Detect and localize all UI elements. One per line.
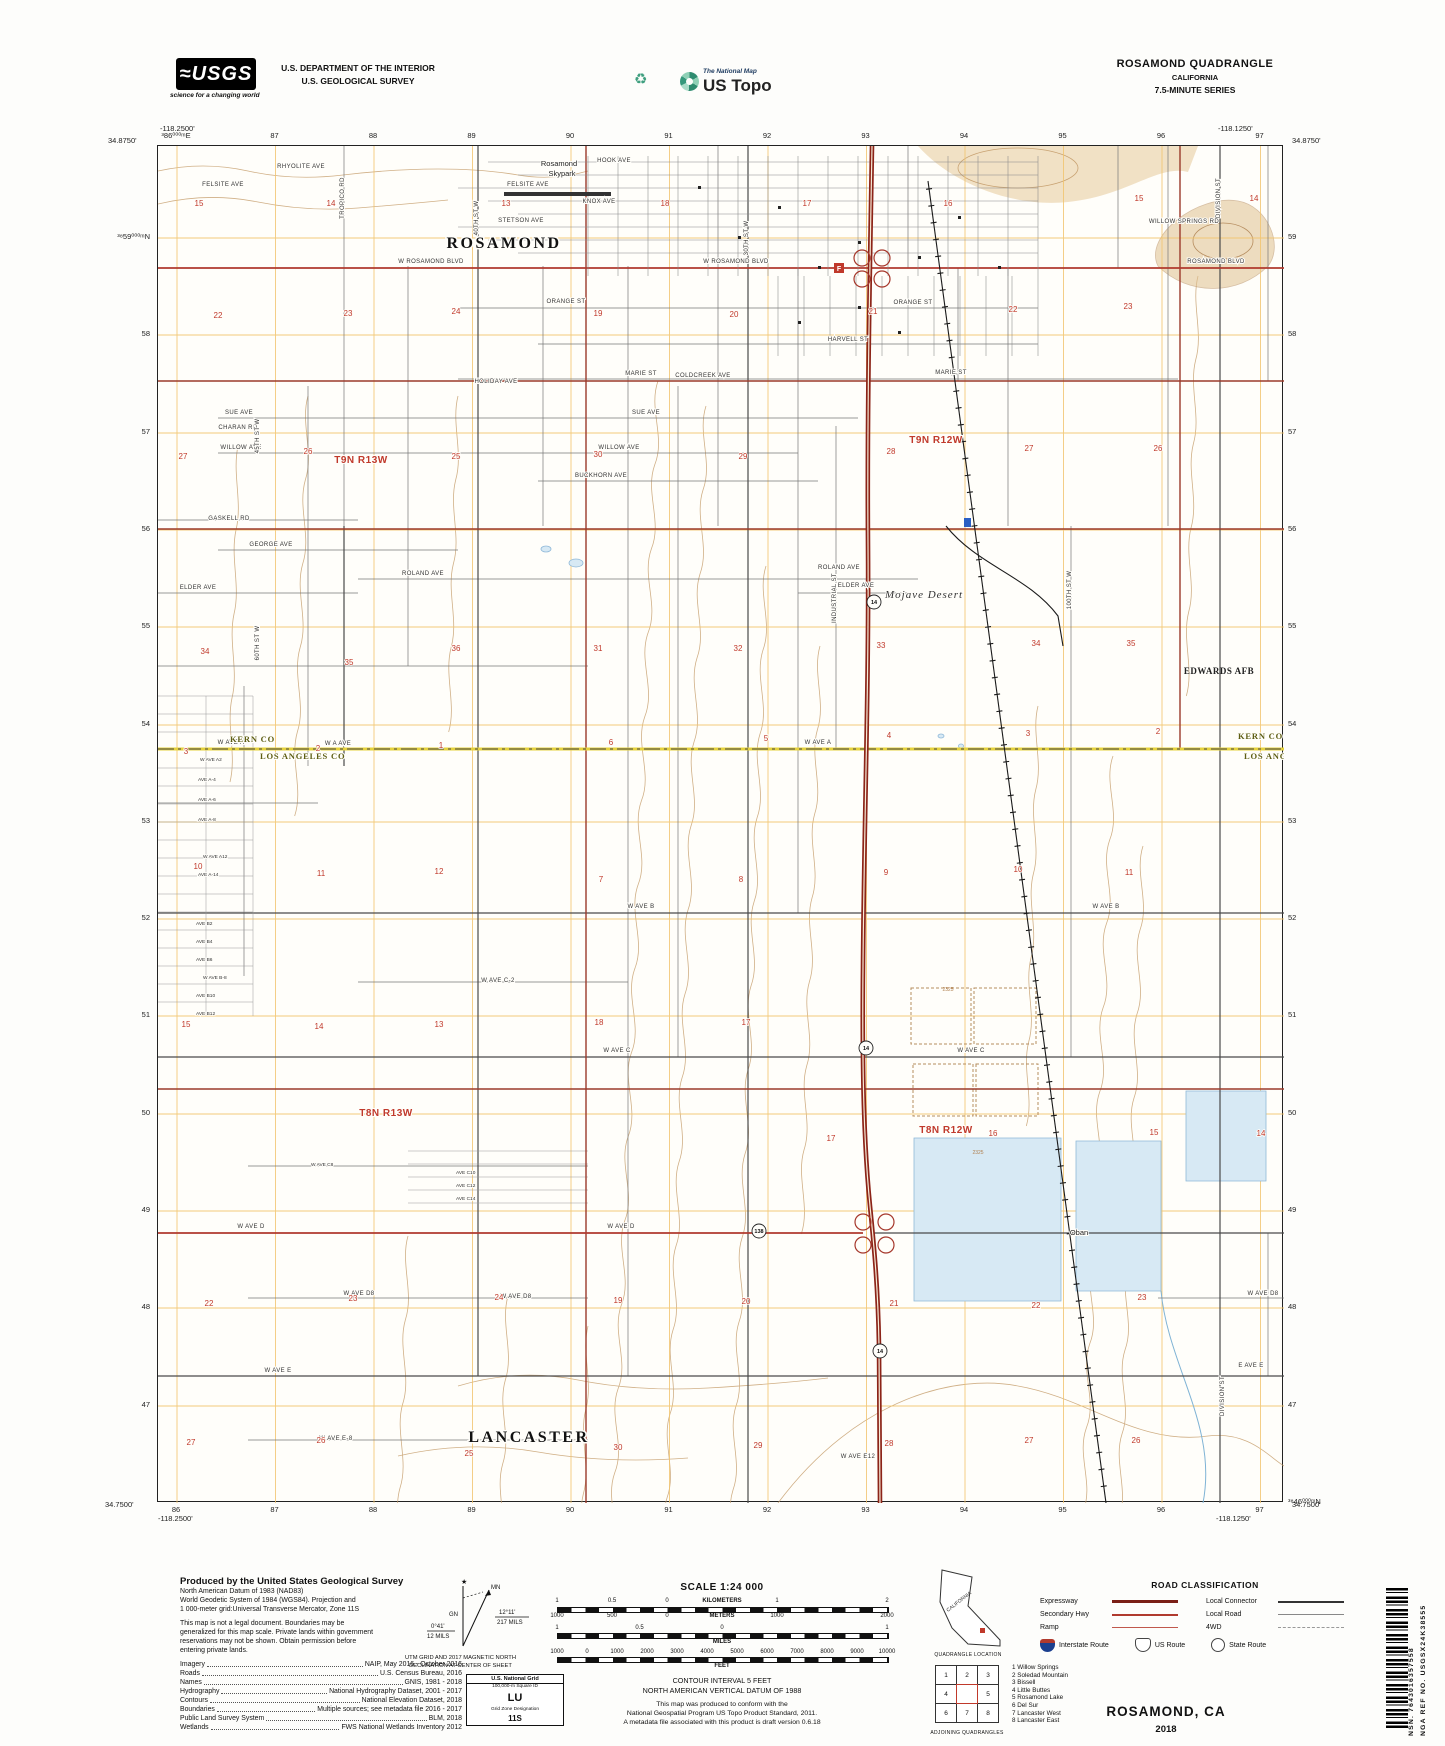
national-map-label: The National Map bbox=[703, 68, 757, 75]
railroad-tick bbox=[1085, 1368, 1091, 1369]
scale-tick-row: 10.501 bbox=[557, 1625, 887, 1633]
ramp-loop bbox=[854, 250, 870, 266]
section-number: 24 bbox=[452, 307, 461, 316]
section-number: 32 bbox=[734, 644, 743, 653]
grid-label: 88 bbox=[369, 131, 377, 140]
shield-number: 14 bbox=[871, 600, 878, 606]
railroad-tick bbox=[983, 610, 989, 611]
nsn-number: NSN. 7643016357558 bbox=[1408, 1560, 1415, 1736]
source-row: BoundariesMultiple sources; see metadata… bbox=[180, 1705, 462, 1714]
map-label-sub: AVE B6 bbox=[196, 957, 213, 963]
section-number: 11 bbox=[317, 869, 326, 878]
grid-label: ³86⁰⁰⁰ᵐE bbox=[161, 131, 190, 140]
section-number: 27 bbox=[179, 452, 188, 461]
map-label-street: GEORGE AVE bbox=[249, 542, 292, 548]
railroad-tick bbox=[931, 222, 937, 223]
california-outline: CALIFORNIA bbox=[928, 1566, 1008, 1650]
scale-tick-row: MILES bbox=[557, 1639, 887, 1647]
grid-label: 54 bbox=[142, 719, 150, 728]
adjoining-quad-name: 7 Lancaster West bbox=[1012, 1710, 1068, 1718]
section-number: 10 bbox=[194, 862, 203, 871]
map-label-sub: AVE A-4 bbox=[198, 777, 216, 783]
map-label-street: W A AVE bbox=[325, 741, 351, 747]
section-number: 33 bbox=[877, 641, 886, 650]
map-label-street: HARVELL ST bbox=[828, 337, 868, 343]
map-label-streetv: 30TH ST W bbox=[744, 221, 750, 256]
svg-text:★: ★ bbox=[461, 1578, 467, 1586]
railroad-tick bbox=[949, 357, 955, 358]
map-label-sub: AVE A-6 bbox=[198, 797, 216, 803]
grid-label: 50 bbox=[142, 1108, 150, 1117]
section-number: 28 bbox=[885, 1439, 894, 1448]
corner-coord-nw-lat: 34.8750' bbox=[108, 136, 137, 145]
map-label-sub: W AVE A2 bbox=[200, 757, 222, 763]
map-label-twnshp: T8N R12W bbox=[919, 1125, 973, 1136]
national-map-icon bbox=[680, 72, 699, 91]
section-number: 18 bbox=[661, 199, 670, 208]
utm-grid bbox=[158, 146, 1284, 1503]
adjoining-cell: 2 bbox=[956, 1665, 978, 1685]
railroad-tick bbox=[1017, 862, 1023, 863]
map-label-place: Skypark bbox=[548, 169, 575, 178]
shield-number: 14 bbox=[877, 1349, 884, 1355]
grid-label: 87 bbox=[270, 1505, 278, 1514]
map-label-street: ELDER AVE bbox=[838, 583, 875, 589]
conformance-note: This map was produced to conform with th… bbox=[527, 1700, 917, 1727]
grid-label: 97 bbox=[1255, 131, 1263, 140]
railroad-tick bbox=[1026, 930, 1032, 931]
contour-line bbox=[230, 446, 238, 782]
map-label-sub: AVE C12 bbox=[456, 1183, 476, 1189]
section-number: 24 bbox=[495, 1293, 504, 1302]
grid-label: 50 bbox=[1288, 1108, 1296, 1117]
map-label-streetv: 100TH ST W bbox=[1067, 571, 1073, 610]
dept-line2: U.S. GEOLOGICAL SURVEY bbox=[268, 75, 448, 88]
grid-label: 91 bbox=[664, 1505, 672, 1514]
railroad-tick bbox=[928, 205, 934, 206]
map-label-street: MARIE ST bbox=[625, 371, 657, 377]
grid-label: 58 bbox=[142, 329, 150, 338]
grid-label: 49 bbox=[142, 1205, 150, 1214]
adjoining-cell: 1 bbox=[935, 1665, 957, 1685]
section-number: 29 bbox=[739, 452, 748, 461]
map-label-street: FELSITE AVE bbox=[202, 182, 244, 188]
section-number: 8 bbox=[739, 875, 744, 884]
pond bbox=[541, 546, 551, 552]
section-number: 19 bbox=[614, 1296, 623, 1305]
contour-line bbox=[458, 1375, 828, 1389]
grid-label: 47 bbox=[142, 1400, 150, 1409]
section-number: 14 bbox=[327, 199, 336, 208]
adjoining-quad-name: 5 Rosamond Lake bbox=[1012, 1694, 1068, 1702]
map-label-county: KERN CO bbox=[1238, 731, 1283, 741]
grid-label: ³⁸46⁰⁰⁰ᵐN bbox=[1288, 1497, 1321, 1506]
railroad-tick bbox=[978, 576, 984, 577]
contour-line bbox=[801, 646, 820, 1234]
map-label-streetv: 45TH ST W bbox=[255, 419, 261, 454]
section-number: 15 bbox=[1135, 194, 1144, 203]
section-number: 15 bbox=[195, 199, 204, 208]
hill-shade bbox=[1155, 200, 1274, 288]
section-number: 26 bbox=[1154, 444, 1163, 453]
building bbox=[998, 266, 1001, 269]
railroad-tick bbox=[1008, 795, 1014, 796]
map-label-street: W AVE B bbox=[1092, 904, 1119, 910]
map-label-street: ORANGE ST bbox=[547, 299, 586, 305]
grid-label: 86 bbox=[172, 1505, 180, 1514]
map-label-street: RHYOLITE AVE bbox=[277, 164, 325, 170]
section-number: 23 bbox=[1138, 1293, 1147, 1302]
quad-location-caption: QUADRANGLE LOCATION bbox=[918, 1652, 1018, 1658]
railroad-tick bbox=[981, 593, 987, 594]
adjoining-cell: 6 bbox=[935, 1703, 957, 1723]
railroad-spur bbox=[946, 526, 1063, 646]
decl-left-mils: 12 MILS bbox=[427, 1634, 449, 1640]
map-label-street: HOOK AVE bbox=[597, 158, 631, 164]
sheet-year: 2018 bbox=[1066, 1724, 1266, 1735]
ramp-loop bbox=[878, 1214, 894, 1230]
lake bbox=[1186, 1091, 1266, 1181]
map-label-sub: AVE B10 bbox=[196, 993, 215, 999]
map-label-town: ROSAMOND bbox=[446, 235, 561, 252]
section-number: 13 bbox=[435, 1020, 444, 1029]
building bbox=[858, 306, 861, 309]
quad-location-dot bbox=[980, 1628, 985, 1633]
contour-line bbox=[500, 1296, 508, 1503]
section-number: 14 bbox=[315, 1022, 324, 1031]
scale-bars: 10.5012KILOMETERS1000500010002000METERS1… bbox=[557, 1598, 887, 1673]
mn-label: MN bbox=[491, 1585, 500, 1591]
map-label-street: W AVE D8 bbox=[500, 1294, 531, 1300]
section-number: 1 bbox=[439, 741, 444, 750]
railroad-tick bbox=[1069, 1250, 1075, 1251]
map-label-streetv: DIVISION ST bbox=[1220, 1376, 1226, 1416]
railroad-tick bbox=[937, 273, 943, 274]
section-number: 25 bbox=[465, 1449, 474, 1458]
section-number: 21 bbox=[869, 307, 878, 316]
decl-right-deg: 12°11' bbox=[499, 1610, 515, 1616]
corner-coord-sw-lat: 34.7500' bbox=[105, 1500, 134, 1509]
railroad-tick bbox=[944, 323, 950, 324]
railroad-tick bbox=[1012, 829, 1018, 830]
gn-label: GN bbox=[449, 1612, 458, 1618]
map-label-street: FELSITE AVE bbox=[507, 182, 549, 188]
grid-label: 52 bbox=[1288, 913, 1296, 922]
adjoining-cell: 7 bbox=[956, 1703, 978, 1723]
vertical-datum: NORTH AMERICAN VERTICAL DATUM OF 1988 bbox=[557, 1686, 887, 1695]
map-label-afb: EDWARDS AFB bbox=[1184, 666, 1254, 676]
building bbox=[798, 321, 801, 324]
section-number: 22 bbox=[214, 311, 223, 320]
grid-label: 91 bbox=[664, 131, 672, 140]
quadrangle-title-block: ROSAMOND QUADRANGLE CALIFORNIA 7.5-MINUT… bbox=[1035, 58, 1355, 95]
contour-line bbox=[449, 396, 459, 732]
grid-label: 90 bbox=[566, 131, 574, 140]
map-label-contour: 2325 bbox=[942, 987, 953, 993]
section-number: 14 bbox=[1257, 1129, 1266, 1138]
grid-label: 53 bbox=[1288, 816, 1296, 825]
railroad-tick bbox=[1003, 761, 1009, 762]
decl-right-mils: 217 MILS bbox=[497, 1620, 523, 1626]
map-label-desert: Mojave Desert bbox=[884, 589, 963, 601]
map-label-street: W AVE D8 bbox=[1247, 1291, 1278, 1297]
map-label-street: W AVE D bbox=[237, 1224, 265, 1230]
map-frame: F141414138HOOK AVERHYOLITE AVEFELSITE AV… bbox=[157, 145, 1283, 1502]
railroad-tick bbox=[953, 391, 959, 392]
grid-label: 57 bbox=[142, 427, 150, 436]
adjoining-grid: 12345678 bbox=[936, 1666, 999, 1723]
railroad-tick bbox=[1001, 745, 1007, 746]
section-number: 2 bbox=[316, 744, 321, 753]
grid-label: 93 bbox=[861, 1505, 869, 1514]
data-sources-list: ImageryNAIP, May 2016 - October 2016Road… bbox=[180, 1660, 480, 1732]
building bbox=[738, 236, 741, 239]
adjoining-caption: ADJOINING QUADRANGLES bbox=[912, 1730, 1022, 1736]
grid-label: 92 bbox=[763, 1505, 771, 1514]
source-row: Public Land Survey SystemBLM, 2018 bbox=[180, 1714, 462, 1723]
railroad-tick bbox=[1005, 778, 1011, 779]
railroad-tick bbox=[967, 492, 973, 493]
water-features bbox=[541, 546, 1266, 1503]
shield-number: 138 bbox=[754, 1229, 763, 1235]
post-office-letter: F bbox=[837, 266, 842, 273]
map-label-streetv: 40TH ST W bbox=[474, 201, 480, 236]
section-number: 22 bbox=[205, 1299, 214, 1308]
section-number: 5 bbox=[764, 734, 769, 743]
railroad-tick bbox=[990, 660, 996, 661]
contour-line bbox=[1186, 276, 1198, 696]
map-label-county: LOS ANGELES CO bbox=[1244, 751, 1284, 761]
creek bbox=[1161, 1291, 1206, 1503]
map-label-place: Rosamond bbox=[541, 159, 577, 168]
section-number: 2 bbox=[1156, 727, 1161, 736]
shield-number: 14 bbox=[863, 1046, 870, 1052]
grid-label: 94 bbox=[960, 1505, 968, 1514]
nga-ref-number: NGA REF NO. USGSX24K38555 bbox=[1420, 1560, 1427, 1736]
section-number: 30 bbox=[594, 450, 603, 459]
recycle-icon: ♻ bbox=[634, 70, 647, 88]
township-lines bbox=[158, 146, 1284, 1503]
shield-legend-item: US Route bbox=[1135, 1638, 1185, 1652]
contour-line bbox=[398, 1447, 688, 1460]
grid-label: 59 bbox=[1288, 232, 1296, 241]
section-number: 22 bbox=[1009, 305, 1018, 314]
railroad-tick bbox=[971, 525, 977, 526]
road-class-row: Expressway Local Connector bbox=[1040, 1595, 1370, 1608]
railroad-tick bbox=[1092, 1418, 1098, 1419]
contour-line bbox=[1083, 756, 1114, 1503]
map-label-county: LOS ANGELES CO bbox=[260, 751, 345, 761]
section-number: 3 bbox=[184, 747, 189, 756]
dept-line1: U.S. DEPARTMENT OF THE INTERIOR bbox=[268, 62, 448, 75]
grid-label: 93 bbox=[861, 131, 869, 140]
contour-line bbox=[664, 406, 707, 1503]
section-number: 27 bbox=[187, 1438, 196, 1447]
map-label-streetv: TROPICO RD bbox=[340, 177, 346, 219]
section-number: 23 bbox=[349, 1294, 358, 1303]
section-number: 18 bbox=[595, 1018, 604, 1027]
scale-tick-row: 1000010002000300040005000600070008000900… bbox=[557, 1649, 887, 1657]
railroad-tick bbox=[1019, 879, 1025, 880]
map-label-street: ROSAMOND BLVD bbox=[1187, 259, 1245, 265]
railroad-tick bbox=[1042, 1048, 1048, 1049]
interchange-ramps bbox=[854, 250, 894, 1253]
map-label-street: HOLIDAY AVE bbox=[474, 379, 517, 385]
section-number: 20 bbox=[730, 310, 739, 319]
railroad-tick bbox=[1010, 812, 1016, 813]
map-label-sub: W AVE C8 bbox=[311, 1162, 334, 1168]
map-label-streetv: INDUSTRIAL ST bbox=[832, 573, 838, 623]
source-row: RoadsU.S. Census Bureau, 2016 bbox=[180, 1669, 462, 1678]
road-class-row: Ramp 4WD bbox=[1040, 1621, 1370, 1634]
source-row: ContoursNational Elevation Dataset, 2018 bbox=[180, 1696, 462, 1705]
lake bbox=[1076, 1141, 1161, 1291]
railroad-tick bbox=[1053, 1132, 1059, 1133]
grid-label: 88 bbox=[369, 1505, 377, 1514]
grid-label: 57 bbox=[1288, 427, 1296, 436]
section-number: 19 bbox=[594, 309, 603, 318]
railroad-tick bbox=[974, 542, 980, 543]
map-label-street: MARIE ST bbox=[935, 370, 967, 376]
map-label-contour: 2325 bbox=[972, 1150, 983, 1156]
map-label-street: W ROSAMOND BLVD bbox=[398, 259, 464, 265]
grid-label: 97 bbox=[1255, 1505, 1263, 1514]
barcode bbox=[1386, 1588, 1408, 1728]
railroad-tick bbox=[1101, 1486, 1107, 1487]
map-label-street: W AVE C bbox=[603, 1048, 631, 1054]
railroad-tick bbox=[940, 290, 946, 291]
railroad-tick bbox=[969, 509, 975, 510]
section-number: 9 bbox=[884, 868, 889, 877]
section-number: 3 bbox=[1026, 729, 1031, 738]
scale-tick-row: FEET bbox=[557, 1663, 887, 1671]
railroad-tick bbox=[1080, 1334, 1086, 1335]
building bbox=[818, 266, 821, 269]
corner-coord-ne-lon: -118.1250' bbox=[1218, 124, 1253, 133]
railroad-tick bbox=[996, 711, 1002, 712]
building bbox=[698, 186, 701, 189]
map-label-town: LANCASTER bbox=[468, 1429, 589, 1446]
grid-label: 52 bbox=[142, 913, 150, 922]
map-label-street: STETSON AVE bbox=[498, 218, 544, 224]
section-number: 4 bbox=[887, 731, 892, 740]
section-number: 35 bbox=[345, 658, 354, 667]
section-number: 26 bbox=[1132, 1436, 1141, 1445]
map-label-street: W AVE E12 bbox=[841, 1454, 876, 1460]
usng-title: U.S. National Grid bbox=[467, 1675, 563, 1684]
railroad-tick bbox=[1015, 846, 1021, 847]
grid-label: 87 bbox=[270, 131, 278, 140]
grid-label: 96 bbox=[1157, 1505, 1165, 1514]
section-number: 16 bbox=[944, 199, 953, 208]
railroad-tick bbox=[956, 408, 962, 409]
railroad-tick bbox=[1094, 1435, 1100, 1436]
section-number: 26 bbox=[304, 447, 313, 456]
section-number: 35 bbox=[1127, 639, 1136, 648]
map-label-twnshp: T9N R13W bbox=[334, 455, 388, 466]
adjoining-cell: 5 bbox=[977, 1684, 999, 1704]
grid-label: 89 bbox=[467, 1505, 475, 1514]
railroad-tick bbox=[935, 256, 941, 257]
map-label-street: W AVE E bbox=[264, 1368, 291, 1374]
pond-cell bbox=[913, 1064, 973, 1116]
ramp-loop bbox=[855, 1214, 871, 1230]
railroad-tick bbox=[1049, 1098, 1055, 1099]
subdivision-grid bbox=[158, 696, 588, 1203]
map-label-street: ROLAND AVE bbox=[402, 571, 444, 577]
grid-label: 90 bbox=[566, 1505, 574, 1514]
map-label-street: ORANGE ST bbox=[894, 300, 933, 306]
section-number: 7 bbox=[599, 875, 604, 884]
usgs-topo-sheet: ≈USGS science for a changing world U.S. … bbox=[0, 0, 1445, 1746]
building bbox=[778, 206, 781, 209]
adjoining-quad-name: 8 Lancaster East bbox=[1012, 1717, 1068, 1725]
corner-coord-se-lon: -118.1250' bbox=[1216, 1514, 1251, 1523]
highway-14-median bbox=[863, 146, 880, 1503]
railroad-tick bbox=[1037, 1014, 1043, 1015]
usgs-tagline: science for a changing world bbox=[170, 92, 260, 99]
section-number: 27 bbox=[1025, 1436, 1034, 1445]
scale-tick-row: 10.5012KILOMETERS bbox=[557, 1598, 887, 1606]
map-label-street: GASKELL RD bbox=[208, 516, 250, 522]
grid-label: 55 bbox=[142, 621, 150, 630]
railroad-tick bbox=[962, 458, 968, 459]
section-number: 16 bbox=[989, 1129, 998, 1138]
section-number: 25 bbox=[452, 452, 461, 461]
railroad-tick bbox=[1078, 1317, 1084, 1318]
map-label-streetv: DIVISION ST bbox=[1216, 178, 1222, 218]
corner-coord-ne-lat: 34.8750' bbox=[1292, 136, 1321, 145]
map-label-county: KERN CO bbox=[230, 734, 275, 744]
adjoining-quad-name: 4 Little Buttes bbox=[1012, 1687, 1068, 1695]
contour-line bbox=[1026, 706, 1038, 1126]
section-number: 22 bbox=[1032, 1301, 1041, 1310]
sheet-title: ROSAMOND, CA bbox=[1066, 1704, 1266, 1719]
decl-left-deg: 0°41' bbox=[431, 1624, 445, 1630]
us-topo-logo: US Topo bbox=[703, 76, 772, 96]
scale-title: SCALE 1:24 000 bbox=[557, 1582, 887, 1593]
state-shield-icon bbox=[1211, 1638, 1225, 1652]
building bbox=[858, 241, 861, 244]
shield-legend-item: State Route bbox=[1211, 1638, 1266, 1652]
section-number: 27 bbox=[1025, 444, 1034, 453]
map-label-sub: W AVE B-8 bbox=[203, 975, 227, 981]
map-label-street: W AVE C-2 bbox=[481, 978, 515, 984]
building bbox=[898, 331, 901, 334]
contour-line bbox=[611, 381, 658, 1503]
section-number: 23 bbox=[344, 309, 353, 318]
railroad-tick bbox=[1021, 896, 1027, 897]
map-label-street: BUCKHORN AVE bbox=[575, 473, 627, 479]
grid-label: 53 bbox=[142, 816, 150, 825]
railroad-tick bbox=[942, 306, 948, 307]
map-label-street: COLDCREEK AVE bbox=[675, 373, 730, 379]
adjoining-quad-name: 3 Bissell bbox=[1012, 1679, 1068, 1687]
section-number: 15 bbox=[182, 1020, 191, 1029]
usgs-logo: ≈USGS bbox=[176, 58, 256, 90]
railroad-tick bbox=[1098, 1469, 1104, 1470]
adjoining-cell: 3 bbox=[977, 1665, 999, 1685]
declination-caption: UTM GRID AND 2017 MAGNETIC NORTH DECLINA… bbox=[388, 1655, 533, 1670]
pond bbox=[959, 744, 964, 748]
railroad-tick bbox=[958, 424, 964, 425]
adjoining-list: 1 Willow Springs2 Soledad Mountain3 Biss… bbox=[1012, 1664, 1068, 1725]
map-label-street: ROLAND AVE bbox=[818, 565, 860, 571]
map-label-sub: AVE C10 bbox=[456, 1170, 476, 1176]
section-number: 34 bbox=[1032, 639, 1041, 648]
adjoining-cell: 8 bbox=[977, 1703, 999, 1723]
adjoining-quad-name: 2 Soledad Mountain bbox=[1012, 1672, 1068, 1680]
